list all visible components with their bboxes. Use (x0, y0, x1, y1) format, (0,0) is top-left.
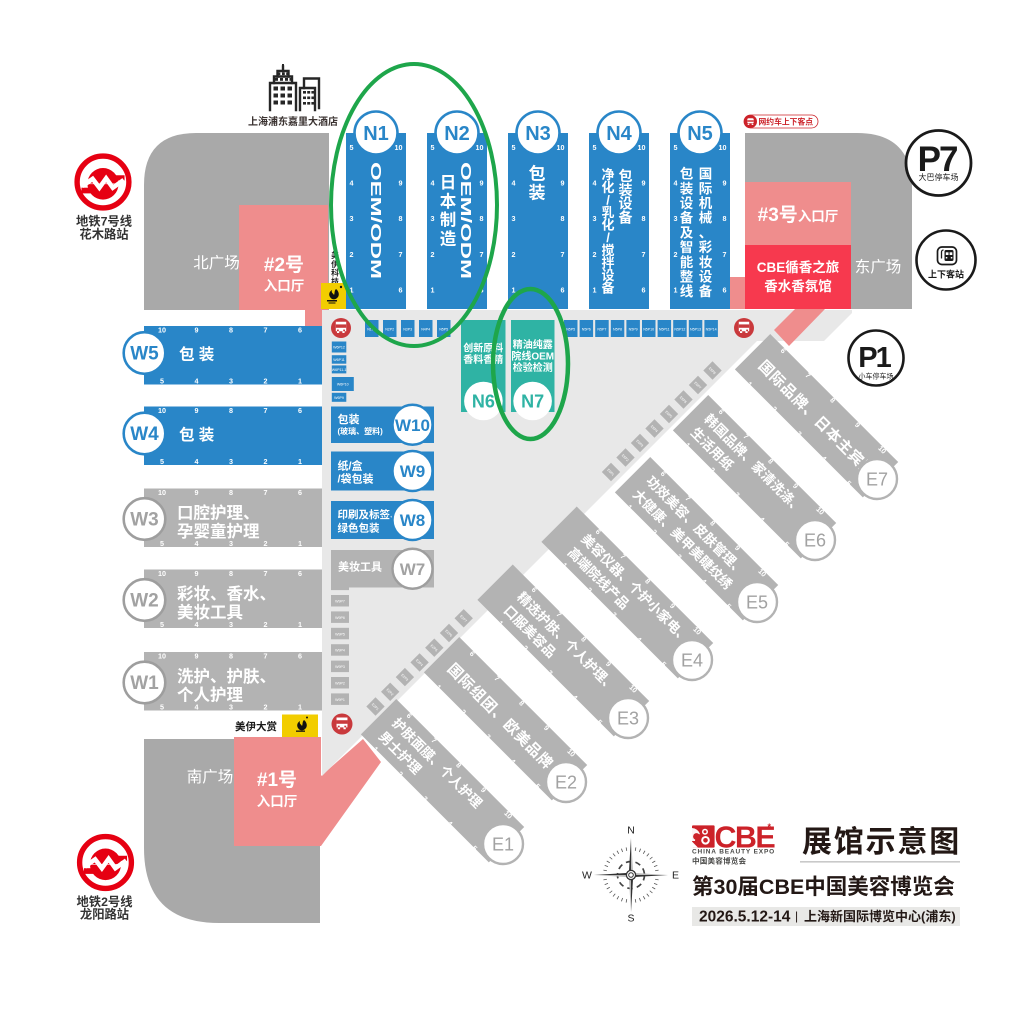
svg-text:*: * (768, 822, 772, 832)
svg-text:1: 1 (298, 457, 302, 466)
svg-text:5: 5 (350, 143, 354, 152)
svg-text:8: 8 (561, 214, 565, 223)
svg-text:备: 备 (601, 281, 614, 296)
svg-text:E2: E2 (555, 773, 577, 793)
svg-text:E7: E7 (866, 470, 888, 490)
svg-text:N6: N6 (472, 392, 495, 412)
svg-text:E3: E3 (617, 709, 639, 729)
svg-text:W9P2: W9P2 (335, 682, 345, 686)
svg-text:7: 7 (480, 250, 484, 259)
svg-text:4: 4 (195, 377, 199, 386)
svg-text:洗护、护肤、: 洗护、护肤、 (177, 667, 276, 686)
svg-text:N5P10: N5P10 (643, 328, 654, 332)
svg-text:#1号: #1号 (257, 770, 297, 791)
svg-text:W6P9: W6P9 (334, 396, 344, 400)
svg-text:印刷及标签、: 印刷及标签、 (338, 508, 401, 521)
svg-text:装: 装 (529, 183, 546, 202)
svg-text:彩妆、香水、: 彩妆、香水、 (177, 584, 276, 604)
svg-text:8: 8 (480, 214, 484, 223)
svg-text:W3: W3 (130, 510, 159, 531)
svg-text:2: 2 (264, 703, 268, 712)
svg-text:2026.5.12-14: 2026.5.12-14 (699, 909, 791, 926)
svg-text:/袋包装: /袋包装 (338, 472, 374, 486)
svg-text:本: 本 (440, 192, 457, 211)
svg-text:N5: N5 (687, 123, 713, 145)
svg-text:8: 8 (229, 652, 233, 661)
svg-text:精油纯露: 精油纯露 (513, 338, 553, 351)
svg-text:妆: 妆 (699, 254, 713, 270)
svg-text:W8: W8 (400, 511, 426, 530)
svg-text:4: 4 (350, 179, 354, 188)
svg-text:1: 1 (593, 285, 597, 294)
svg-text:3: 3 (593, 214, 597, 223)
svg-text:N3: N3 (525, 123, 551, 145)
svg-text:2: 2 (264, 620, 268, 629)
svg-text:机: 机 (699, 195, 713, 211)
svg-text:美伊大赏: 美伊大赏 (235, 720, 277, 733)
svg-text:备: 备 (699, 283, 713, 299)
svg-text:7: 7 (723, 250, 727, 259)
svg-text:W: W (582, 870, 592, 882)
svg-text:10: 10 (158, 326, 166, 335)
svg-text:1: 1 (674, 285, 678, 294)
svg-text:3: 3 (229, 377, 233, 386)
svg-text:9: 9 (399, 179, 403, 188)
svg-text:4: 4 (593, 179, 597, 188)
svg-text:绿色包装: 绿色包装 (338, 522, 380, 535)
svg-text:6: 6 (298, 569, 302, 578)
svg-text:7: 7 (264, 406, 268, 415)
svg-text:10: 10 (158, 652, 166, 661)
svg-text:4: 4 (674, 179, 678, 188)
svg-text:装: 装 (680, 180, 694, 196)
svg-text:CBE循香之旅: CBE循香之旅 (757, 259, 840, 275)
svg-text:1: 1 (431, 285, 435, 294)
svg-text:W9P5: W9P5 (335, 632, 345, 636)
svg-text:香水香氛馆: 香水香氛馆 (764, 278, 832, 294)
svg-text:6: 6 (399, 285, 403, 294)
svg-text:3: 3 (512, 214, 516, 223)
svg-text:W6P12: W6P12 (333, 346, 345, 350)
svg-text:5: 5 (160, 620, 164, 629)
svg-text:N3P3: N3P3 (403, 328, 412, 332)
svg-text:线: 线 (680, 283, 694, 299)
svg-text:W2: W2 (130, 591, 159, 612)
svg-text:W9P3: W9P3 (335, 665, 345, 669)
svg-text:院线OEM: 院线OEM (511, 350, 554, 363)
svg-text:9: 9 (195, 326, 199, 335)
svg-text:N5P12: N5P12 (674, 328, 685, 332)
svg-text:5: 5 (593, 143, 597, 152)
svg-text:E1: E1 (492, 835, 514, 855)
svg-text:W9: W9 (400, 462, 426, 481)
svg-text:N2: N2 (444, 123, 470, 145)
svg-text:8: 8 (642, 214, 646, 223)
svg-text:5: 5 (674, 143, 678, 152)
svg-text:智: 智 (680, 239, 694, 255)
svg-text:8: 8 (723, 214, 727, 223)
svg-text:、: 、 (699, 225, 713, 240)
svg-text:国: 国 (699, 167, 713, 182)
svg-text:N5P9: N5P9 (629, 328, 638, 332)
svg-text:6: 6 (642, 285, 646, 294)
svg-text:N5P5: N5P5 (439, 328, 448, 332)
svg-text:3: 3 (350, 214, 354, 223)
svg-text:展馆示意图: 展馆示意图 (802, 826, 961, 859)
svg-text:7: 7 (264, 652, 268, 661)
svg-text:5: 5 (160, 377, 164, 386)
svg-text:创新原料: 创新原料 (463, 342, 503, 355)
svg-text:7: 7 (264, 326, 268, 335)
svg-text:2: 2 (593, 250, 597, 259)
svg-text:5: 5 (160, 539, 164, 548)
svg-text:5: 5 (431, 143, 435, 152)
svg-text:能: 能 (680, 254, 694, 270)
svg-text:入口厅: 入口厅 (264, 279, 305, 294)
svg-text:上下客站: 上下客站 (928, 269, 964, 280)
svg-text:W6P11: W6P11 (333, 358, 345, 362)
svg-text:E6: E6 (804, 531, 826, 551)
svg-text:E: E (672, 870, 679, 882)
svg-text:美妆工具: 美妆工具 (177, 602, 244, 622)
svg-text:7: 7 (561, 250, 565, 259)
svg-text:7: 7 (642, 250, 646, 259)
svg-text:制: 制 (440, 211, 457, 230)
svg-text:际: 际 (699, 181, 713, 196)
svg-text:6: 6 (723, 285, 727, 294)
svg-text:W5: W5 (130, 344, 159, 365)
svg-text:8: 8 (229, 406, 233, 415)
svg-text:2: 2 (431, 250, 435, 259)
svg-text:9: 9 (195, 569, 199, 578)
svg-text:械: 械 (699, 210, 713, 226)
svg-text:8: 8 (399, 214, 403, 223)
svg-text:N7: N7 (521, 392, 544, 412)
svg-text:9: 9 (195, 406, 199, 415)
svg-text:N1: N1 (363, 123, 389, 145)
svg-text:检验检测: 检验检测 (513, 361, 553, 374)
svg-text:W10: W10 (395, 416, 430, 435)
svg-text:美妆工具: 美妆工具 (338, 560, 382, 574)
svg-text:5: 5 (160, 703, 164, 712)
svg-text:北广场: 北广场 (193, 254, 240, 272)
svg-text:10: 10 (158, 488, 166, 497)
svg-text:W7: W7 (400, 560, 426, 579)
svg-text:2: 2 (264, 457, 268, 466)
svg-text:孕婴童护理: 孕婴童护理 (177, 521, 260, 541)
svg-text:龙阳路站: 龙阳路站 (80, 907, 129, 922)
svg-text:CHINA BEAUTY EXPO: CHINA BEAUTY EXPO (692, 849, 775, 856)
svg-text:纸/盒: 纸/盒 (338, 459, 363, 473)
svg-text:9: 9 (723, 179, 727, 188)
svg-text:包装: 包装 (338, 412, 360, 426)
svg-text:7: 7 (264, 488, 268, 497)
svg-text:第30届CBE中国美容博览会: 第30届CBE中国美容博览会 (692, 874, 955, 899)
svg-text:W6P10: W6P10 (337, 383, 349, 387)
svg-text:8: 8 (229, 569, 233, 578)
svg-text:彩: 彩 (699, 240, 713, 255)
svg-text:10: 10 (158, 569, 166, 578)
svg-text:N5P11: N5P11 (659, 328, 670, 332)
svg-text:N5P6: N5P6 (582, 328, 591, 332)
svg-text:小车停车场: 小车停车场 (859, 372, 894, 381)
svg-text:备: 备 (680, 210, 694, 226)
svg-text:OEM/ODM: OEM/ODM (457, 162, 473, 279)
svg-text:造: 造 (440, 229, 457, 248)
svg-text:N5P7: N5P7 (597, 328, 606, 332)
svg-text:W9P7: W9P7 (335, 600, 345, 604)
svg-text:2: 2 (512, 250, 516, 259)
svg-text:N5P8: N5P8 (613, 328, 622, 332)
svg-text:设: 设 (699, 270, 713, 285)
svg-text:9: 9 (642, 179, 646, 188)
svg-text:5: 5 (512, 143, 516, 152)
svg-text:|: | (795, 909, 798, 923)
svg-text:4: 4 (512, 179, 516, 188)
svg-text:OEM/ODM: OEM/ODM (367, 162, 383, 279)
svg-text:中国美容博览会: 中国美容博览会 (692, 855, 746, 865)
svg-text:大巴停车场: 大巴停车场 (919, 172, 959, 182)
svg-text:包 装: 包 装 (179, 425, 215, 444)
svg-text:3: 3 (431, 214, 435, 223)
svg-text:(玻璃、塑料): (玻璃、塑料) (338, 426, 384, 436)
svg-text:4: 4 (431, 179, 435, 188)
svg-text:W6P11-1: W6P11-1 (332, 368, 347, 372)
svg-text:东广场: 东广场 (855, 258, 902, 276)
svg-text:N4P4: N4P4 (421, 328, 430, 332)
svg-text:6: 6 (561, 285, 565, 294)
svg-text:N: N (627, 825, 635, 837)
svg-text:2: 2 (264, 377, 268, 386)
svg-text:S: S (627, 913, 634, 925)
svg-text:10: 10 (158, 406, 166, 415)
svg-text:9: 9 (480, 179, 484, 188)
svg-text:9: 9 (195, 652, 199, 661)
svg-text:香料香精: 香料香精 (463, 353, 503, 366)
svg-text:W9P6: W9P6 (335, 616, 345, 620)
svg-text:P1: P1 (858, 342, 891, 374)
svg-text:1: 1 (298, 620, 302, 629)
svg-text:网约车上下客点: 网约车上下客点 (759, 116, 814, 126)
svg-text:W9P4: W9P4 (335, 649, 345, 653)
svg-text:E4: E4 (681, 651, 703, 671)
svg-text:2: 2 (674, 250, 678, 259)
svg-text:地铁7号线: 地铁7号线 (76, 214, 132, 229)
svg-text:9: 9 (195, 488, 199, 497)
svg-text:9: 9 (561, 179, 565, 188)
svg-text:1: 1 (298, 377, 302, 386)
svg-text:及: 及 (680, 225, 694, 240)
svg-text:8: 8 (229, 326, 233, 335)
svg-text:7: 7 (264, 569, 268, 578)
svg-text:南广场: 南广场 (187, 768, 234, 786)
svg-text:W9P1: W9P1 (335, 698, 345, 702)
svg-text:设: 设 (680, 196, 694, 211)
svg-text:日: 日 (440, 174, 457, 192)
svg-text:1: 1 (298, 703, 302, 712)
svg-text:2: 2 (264, 539, 268, 548)
svg-text:3: 3 (674, 214, 678, 223)
svg-text:备: 备 (619, 209, 633, 225)
svg-text:6: 6 (298, 406, 302, 415)
svg-text:W4: W4 (130, 424, 159, 445)
svg-text:花木路站: 花木路站 (79, 227, 128, 242)
svg-text:6: 6 (298, 652, 302, 661)
svg-text:8: 8 (229, 488, 233, 497)
svg-text:#3号入口厅: #3号入口厅 (758, 205, 839, 226)
svg-text:N2P2: N2P2 (385, 328, 394, 332)
svg-text:整: 整 (680, 269, 694, 285)
svg-text:上海新国际博览中心(浦东): 上海新国际博览中心(浦东) (804, 909, 956, 924)
svg-text:#2号: #2号 (264, 255, 304, 276)
svg-text:4: 4 (195, 457, 199, 466)
svg-text:包: 包 (680, 166, 694, 182)
svg-text:2: 2 (350, 250, 354, 259)
svg-text:6: 6 (298, 326, 302, 335)
svg-text:个人护理: 个人护理 (177, 686, 244, 705)
svg-text:N5P13: N5P13 (690, 328, 701, 332)
svg-text:W1: W1 (130, 673, 159, 694)
svg-text:科: 科 (331, 268, 339, 278)
svg-text:6: 6 (298, 488, 302, 497)
svg-text:N4: N4 (606, 123, 632, 145)
svg-text:N5P14: N5P14 (706, 328, 717, 332)
svg-text:3: 3 (229, 457, 233, 466)
svg-text:口腔护理、: 口腔护理、 (177, 503, 260, 523)
svg-text:包: 包 (529, 164, 546, 184)
svg-text:E5: E5 (746, 593, 768, 613)
svg-text:1: 1 (298, 539, 302, 548)
svg-text:N5P5: N5P5 (566, 328, 575, 332)
svg-text:7: 7 (399, 250, 403, 259)
svg-text:5: 5 (160, 457, 164, 466)
svg-text:入口厅: 入口厅 (257, 794, 298, 809)
svg-text:上海浦东嘉里大酒店: 上海浦东嘉里大酒店 (248, 115, 338, 128)
svg-text:包 装: 包 装 (179, 345, 215, 364)
